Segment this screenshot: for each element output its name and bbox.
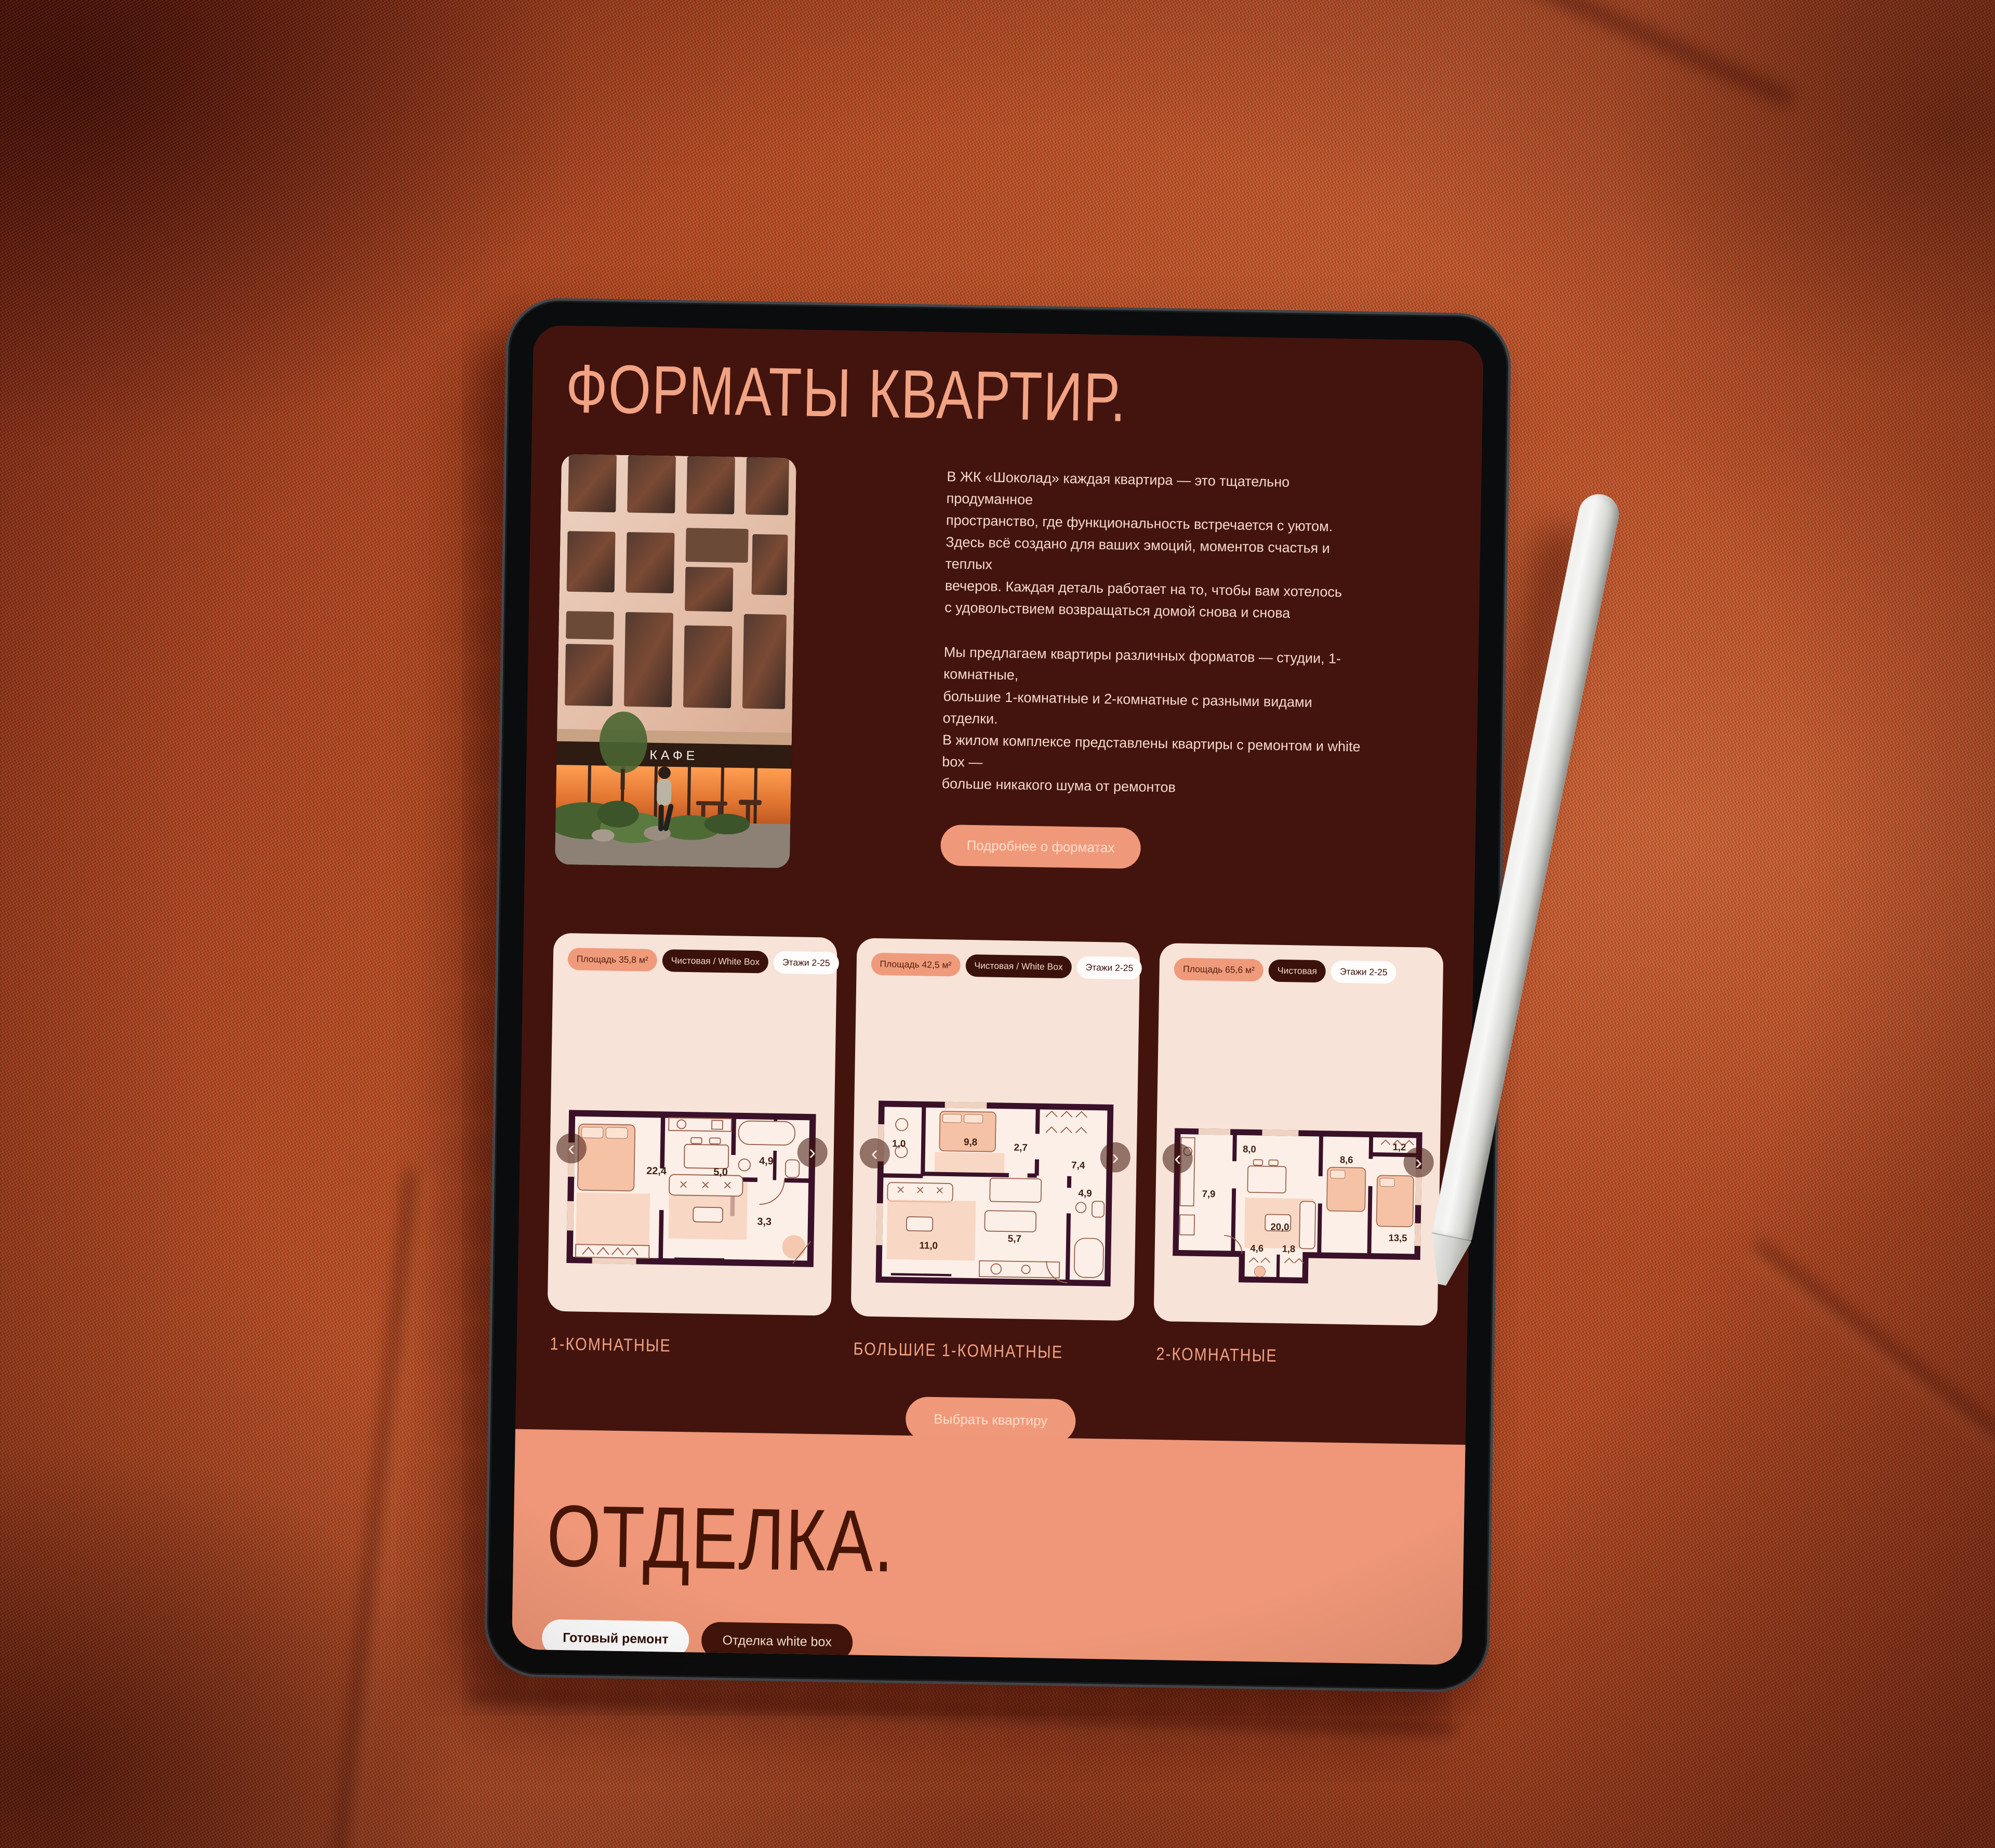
scene: ФОРМАТЫ КВАРТИР. bbox=[0, 0, 1995, 1848]
photo-vignette bbox=[0, 0, 1995, 1848]
